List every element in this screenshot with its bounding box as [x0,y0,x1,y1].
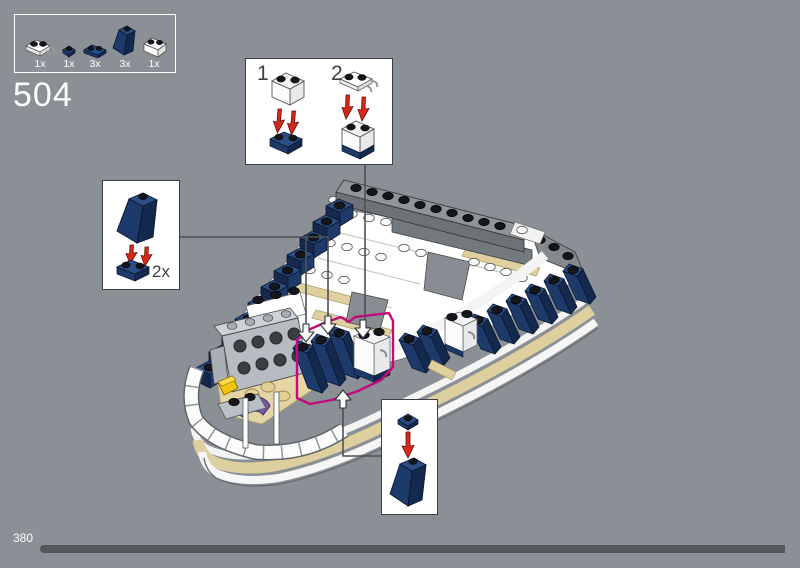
white-brick-1x2-icon [140,32,168,58]
part-count: 3x [119,59,130,70]
blue-plate-1x2-icon [80,40,110,58]
plate-onto-slope-graphic [390,414,426,506]
red-arrows [342,95,369,121]
progress-bar-fill [40,545,785,553]
substep-2-graphic [340,72,377,159]
parts-panel: 1x 1x 3x [14,14,176,73]
red-arrow [402,432,414,458]
page-number: 380 [13,531,33,545]
part-count: 3x [89,59,100,70]
part-white-brick-1x2: 1x [140,32,168,70]
arrow-up-1 [335,390,351,408]
substep-1-graphic [270,73,304,154]
step-number: 504 [13,76,73,115]
repeat-callout-box: 2x [102,180,180,290]
progress-bar [40,545,800,553]
part-count: 1x [148,59,159,70]
instruction-page: 1x 1x 3x [0,0,800,568]
part-count: 1x [34,59,45,70]
substep-2-label: 2 [331,62,343,86]
white-clip-plate-icon [22,34,58,58]
part-blue-plate-1x2: 3x [80,40,110,70]
repeat-count-label: 2x [152,262,170,282]
blue-slope-icon [111,22,139,58]
part-blue-plate-1x1: 1x [59,40,79,70]
part-white-clip-plate: 1x [22,34,58,70]
red-arrows [274,109,299,135]
blue-plate-1x1-icon [59,40,79,58]
single-graphic [382,400,437,514]
clip-brick-new [354,328,390,382]
clip-brick-existing [445,310,477,357]
substeps-callout-box: 1 2 [245,58,393,165]
slope-onto-plate-graphic [117,193,157,281]
part-count: 1x [63,59,74,70]
part-blue-slope: 3x [111,22,139,70]
single-callout-box [381,399,438,515]
substep-1-label: 1 [257,62,269,86]
